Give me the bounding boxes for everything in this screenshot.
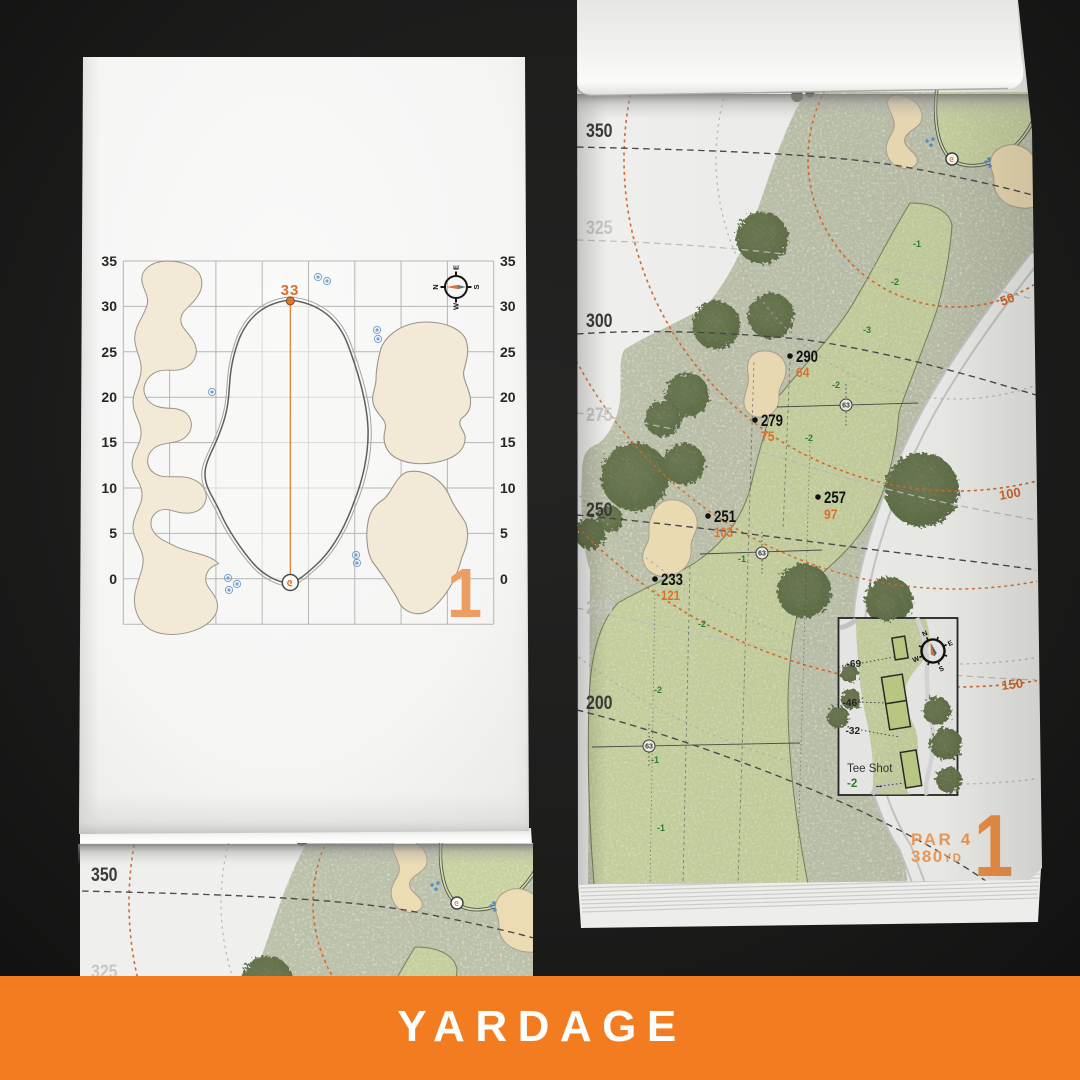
- svg-text:YARDAGE: YARDAGE: [397, 1002, 686, 1051]
- svg-text:35: 35: [101, 253, 117, 269]
- svg-text:20: 20: [101, 389, 117, 405]
- svg-text:0: 0: [500, 571, 508, 587]
- svg-text:35: 35: [500, 253, 516, 269]
- svg-text:25: 25: [500, 344, 516, 360]
- svg-text:W: W: [452, 302, 461, 310]
- svg-text:0: 0: [109, 571, 117, 587]
- svg-text:5: 5: [500, 525, 508, 541]
- svg-text:10: 10: [500, 480, 516, 496]
- svg-text:N: N: [431, 284, 440, 289]
- svg-text:5: 5: [109, 525, 117, 541]
- svg-text:15: 15: [500, 434, 516, 450]
- svg-text:1: 1: [447, 555, 482, 633]
- svg-text:30: 30: [101, 298, 117, 314]
- svg-text:S: S: [472, 284, 481, 289]
- svg-text:20: 20: [500, 389, 516, 405]
- svg-text:30: 30: [500, 298, 516, 314]
- svg-text:33: 33: [281, 282, 300, 299]
- svg-text:10: 10: [101, 480, 117, 496]
- svg-text:25: 25: [101, 344, 117, 360]
- svg-text:E: E: [452, 265, 461, 270]
- svg-text:15: 15: [101, 434, 117, 450]
